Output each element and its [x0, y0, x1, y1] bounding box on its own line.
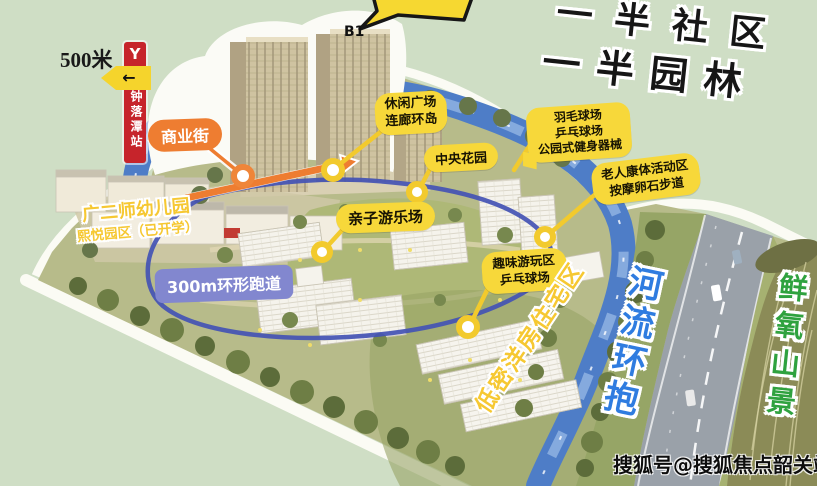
- label-family-playground: 亲子游乐场: [336, 201, 436, 233]
- label-central-garden: 中央花园: [423, 142, 498, 173]
- marker-family-playground: [314, 244, 330, 260]
- left-arrow-icon: ←: [122, 70, 135, 86]
- marker-commercial-street: [234, 167, 252, 185]
- marker-leisure-plaza: [324, 161, 342, 179]
- label-commercial-street: 商业街: [147, 118, 222, 153]
- tower-id-label: B1: [344, 24, 364, 40]
- label-leisure-plaza-line2: 连廊环岛: [385, 112, 438, 132]
- label-running-track: 300m环形跑道: [154, 265, 293, 304]
- station-name: 钟落潭站: [127, 90, 144, 150]
- distance-label: 500米: [60, 44, 113, 74]
- watermark: 搜狐号@搜狐焦点韶关站: [613, 449, 817, 478]
- marker-elderly-zone: [537, 229, 553, 245]
- label-leisure-plaza: 休闲广场 连廊环岛: [374, 90, 448, 135]
- label-sports-park: 羽毛球场 乒乓球场 公园式健身器械: [525, 101, 633, 163]
- marker-central-garden: [409, 184, 425, 200]
- marker-fun-play-area: [459, 318, 477, 336]
- site-plan-poster: 一半社区 一半园林 500米 Y ← 钟落潭站 B1 商业街 休闲广场 连廊环岛…: [0, 0, 817, 486]
- metro-logo-icon: Y: [124, 45, 146, 63]
